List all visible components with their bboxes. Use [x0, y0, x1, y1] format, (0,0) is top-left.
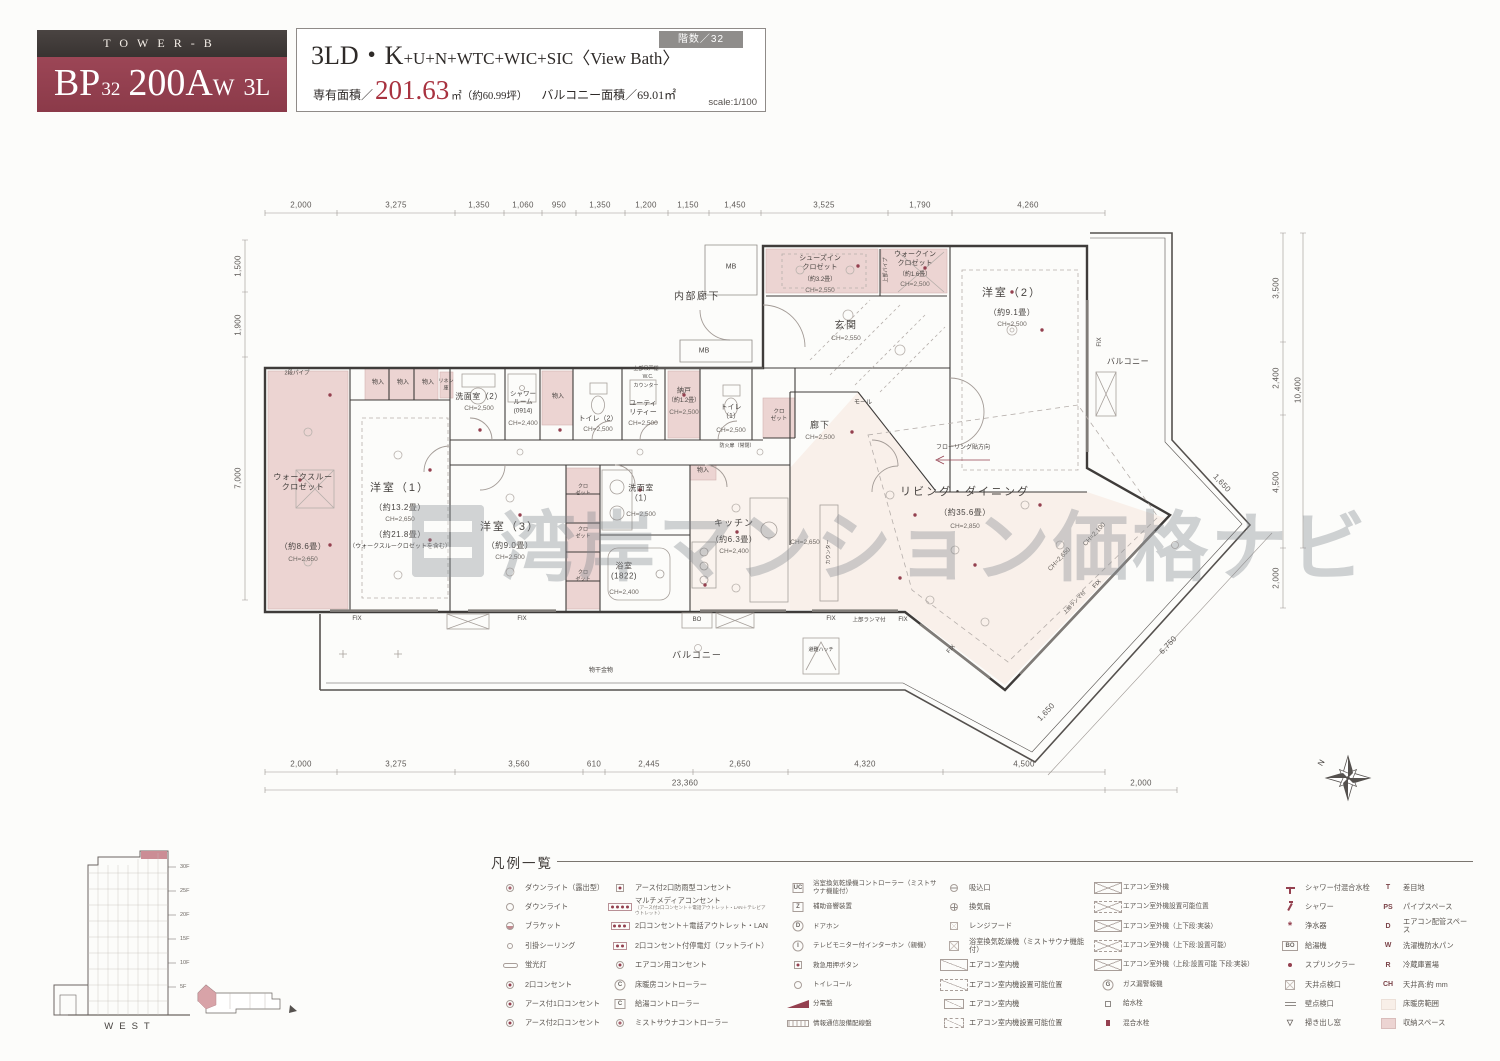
room-ch-bedroom3: CH=2,500 — [495, 554, 524, 562]
room-size-storeroom: （約1.2畳） — [668, 398, 700, 406]
label-fix-4: FIX — [898, 617, 907, 625]
floorplan-sheet: TOWER-B BP32200AW3L 階数／32 3LD・K+U+N+WTC+… — [0, 0, 1500, 1061]
dim-right-0: 3,500 — [1272, 277, 1281, 299]
label-laundry-pole: 物干金物 — [589, 668, 613, 676]
label-storage-2: 物入 — [397, 380, 409, 388]
dim-left-0: 1,500 — [234, 255, 243, 277]
label-mb-2: MB — [699, 346, 710, 355]
dim-bottom-5: 2,650 — [729, 760, 751, 769]
dim-bottom-1: 3,275 — [385, 760, 407, 769]
room-label-walkin-closet: ウォークイン クロゼット — [894, 250, 936, 268]
dim-top-3: 1,060 — [512, 201, 534, 210]
room-label-living-dining: リビング・ダイニング — [900, 485, 1030, 499]
room-label-corridor: 廊下 — [810, 420, 830, 432]
label-closet-1: クロ ゼット — [575, 484, 590, 497]
dim-right-bottom: 2,000 — [1272, 567, 1281, 589]
label-ch-extra-1: CH=2,650 — [790, 539, 819, 547]
room-ch-shoes-closet: CH=2,550 — [805, 287, 834, 295]
room-ch-washroom2: CH=2,500 — [464, 405, 493, 413]
room-size-shoes-closet: （約3.2畳） — [804, 277, 836, 285]
room-size-bedroom3: （約9.0畳） — [487, 541, 534, 551]
label-escape-hatch: 避難ハッチ — [808, 647, 833, 654]
label-upper-pipe: 上部パイプ — [883, 257, 890, 282]
label-island-counter: カウンター — [826, 539, 833, 564]
room-ch-toilet2: CH=2,500 — [583, 426, 612, 434]
room-label-inner-corridor: 内部廊下 — [674, 291, 720, 304]
label-storage-1: 物入 — [372, 380, 384, 388]
label-transom-1: 上部ランマ付 — [852, 617, 885, 624]
dim-top-5: 1,350 — [589, 201, 611, 210]
flooring-direction-arrow — [936, 456, 990, 464]
label-balcony-east: バルコニー — [1107, 357, 1149, 367]
label-flooring-direction: フローリング貼方向 — [936, 445, 990, 453]
room-ch-utility: CH=2,500 — [628, 420, 657, 428]
label-fix-3: FIX — [826, 616, 835, 624]
label-upper-cabinet: 上部吊戸棚 — [633, 366, 658, 373]
label-linen: リネン 庫 — [438, 379, 453, 392]
label-counter: カウンター — [633, 383, 658, 390]
room-size-living-dining: （約35.6畳） — [939, 508, 991, 518]
room-label-shoes-closet: シューズイン クロゼット — [799, 254, 841, 272]
dim-bottom-7: 4,500 — [1013, 760, 1035, 769]
dim-top-8: 1,450 — [724, 201, 746, 210]
room-ch-bath: CH=2,400 — [609, 589, 638, 597]
compass-icon — [1326, 756, 1370, 800]
room-size-bedroom1: （約13.2畳） — [374, 503, 426, 513]
dim-left-2: 7,000 — [234, 467, 243, 489]
room-label-entrance: 玄関 — [835, 320, 858, 333]
room-ch-living-dining: CH=2,850 — [950, 523, 979, 531]
dim-top-9: 3,525 — [813, 201, 835, 210]
room-size-bedroom2: （約9.1畳） — [989, 308, 1036, 318]
room-size2-bedroom1: （約21.8畳） — [374, 530, 426, 540]
room-label-kitchen: キッチン — [714, 518, 754, 530]
room-label-storeroom: 納戸 — [677, 386, 691, 395]
room-label-bath: 浴室 (1822) — [611, 562, 637, 583]
dim-top-6: 1,200 — [635, 201, 657, 210]
room-ch-walkthrough-closet: CH=2,650 — [288, 556, 317, 564]
room-ch-corridor: CH=2,500 — [805, 434, 834, 442]
room-ch-shower-room: CH=2,400 — [508, 420, 537, 428]
floor-plan-drawing — [0, 0, 1500, 1061]
dim-bottom-2: 3,560 — [508, 760, 530, 769]
dim-top-2: 1,350 — [468, 201, 490, 210]
label-closet-4: クロ ゼット — [771, 409, 788, 423]
dim-top-11: 4,260 — [1017, 201, 1039, 210]
label-molding: モール — [854, 400, 872, 408]
room-label-washroom1: 洗面室 （1） — [628, 484, 654, 505]
dim-bottom-4: 2,445 — [638, 760, 660, 769]
dim-right-total: 10,400 — [1294, 377, 1303, 403]
dim-top-10: 1,790 — [909, 201, 931, 210]
label-balcony-south: バルコニー — [672, 650, 722, 662]
room-ch-storeroom: CH=2,500 — [669, 409, 698, 417]
room-ch-entrance: CH=2,550 — [831, 335, 860, 343]
dim-top-7: 1,150 — [677, 201, 699, 210]
room-ch-washroom1: CH=2,500 — [626, 511, 655, 519]
room-size-kitchen: （約6.3畳） — [711, 535, 758, 545]
dim-right-2: 4,500 — [1272, 471, 1281, 493]
dim-left-1: 1,900 — [234, 314, 243, 336]
label-fix-1: FIX — [352, 616, 361, 624]
label-storage-5: 物入 — [697, 468, 709, 476]
dim-right-1: 2,400 — [1272, 367, 1281, 389]
room-label-shower-room: シャワー ルーム (0914) — [510, 390, 536, 415]
room-label-toilet1: トイレ （1） — [721, 403, 742, 421]
label-two-tier-pipe: 2段パイプ — [284, 370, 309, 377]
label-storage-3: 物入 — [422, 380, 434, 388]
label-wc: W.C. — [643, 374, 654, 381]
room-size-walkin-closet: （約1.6畳） — [899, 272, 931, 280]
label-boiler: BO — [693, 617, 702, 625]
label-fire-door: 防火扉（常閉） — [719, 443, 754, 450]
dim-top-0: 2,000 — [290, 201, 312, 210]
dim-top-4: 950 — [552, 201, 566, 210]
label-closet-2: クロ ゼット — [575, 527, 590, 540]
room-label-bedroom3: 洋室（3） — [480, 520, 540, 534]
label-storage-4: 物入 — [552, 394, 564, 402]
dim-top-1: 3,275 — [385, 201, 407, 210]
dim-bottom-6: 4,320 — [854, 760, 876, 769]
label-fix-5: FIX — [1097, 337, 1105, 346]
label-closet-3: クロ ゼット — [575, 570, 590, 583]
label-fix-2: FIX — [517, 616, 526, 624]
room-note-bedroom1: （ウォークスルークロゼットを含む） — [349, 544, 451, 552]
room-ch-toilet1: CH=2,500 — [716, 427, 745, 435]
room-label-utility: ユーティ リティー — [629, 399, 657, 417]
room-label-bedroom2: 洋室（2） — [982, 286, 1042, 300]
room-label-washroom2: 洗面室（2） — [455, 392, 502, 402]
room-ch-walkin-closet: CH=2,500 — [900, 281, 929, 289]
room-ch-kitchen: CH=2,400 — [719, 548, 748, 556]
room-ch-bedroom1: CH=2,650 — [385, 516, 414, 524]
dim-bottom-total: 23,360 — [672, 779, 698, 788]
room-label-bedroom1: 洋室（1） — [370, 481, 430, 495]
label-mb-1: MB — [726, 262, 737, 271]
dim-bottom-3: 610 — [587, 760, 601, 769]
room-label-walkthrough-closet: ウォークスルー クロゼット — [273, 473, 332, 494]
room-label-toilet2: トイレ（2） — [579, 414, 618, 423]
room-ch-bedroom2: CH=2,500 — [997, 321, 1026, 329]
room-size-walkthrough-closet: （約8.6畳） — [280, 542, 327, 552]
dim-bottom-right: 2,000 — [1130, 779, 1152, 788]
dim-bottom-0: 2,000 — [290, 760, 312, 769]
